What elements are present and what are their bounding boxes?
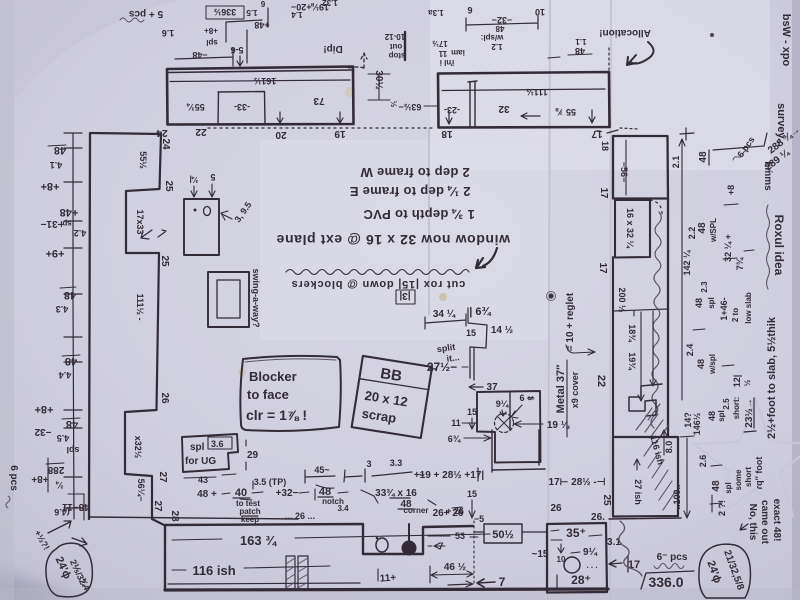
svg-text:4.1: 4.1 (50, 160, 63, 170)
svg-text:BB: BB (379, 365, 403, 385)
svg-text:+ 26: + 26 (446, 506, 464, 516)
svg-text:¾|: ¾| (190, 175, 199, 184)
svg-text:18: 18 (441, 128, 453, 139)
svg-text:~15: ~15 (532, 549, 549, 560)
svg-text:37: 37 (486, 382, 498, 393)
svg-text:17½: 17½ (432, 39, 448, 48)
svg-text:= 10 + reglet: = 10 + reglet (565, 292, 576, 351)
svg-text:spl: spl (717, 410, 726, 422)
svg-text:10-12: 10-12 (384, 32, 405, 41)
svg-text:short:: short: (732, 397, 741, 420)
svg-text:25: 25 (601, 494, 612, 506)
svg-text:163 ¾: 163 ¾ (240, 533, 277, 548)
svg-text:26: 26 (550, 503, 562, 514)
svg-text:161½: 161½ (253, 76, 276, 86)
svg-text:stop: stop (388, 51, 405, 60)
svg-text:48: 48 (65, 355, 77, 367)
svg-text:48: 48 (66, 418, 78, 430)
svg-text:55 ⅞: 55 ⅞ (556, 107, 577, 117)
svg-text:55½: 55½ (138, 151, 148, 169)
svg-text:7: 7 (499, 575, 506, 589)
svg-text:4.2: 4.2 (74, 228, 87, 238)
svg-text:50½: 50½ (492, 529, 513, 541)
svg-text:x32½: x32½ (133, 436, 143, 459)
svg-text:40: 40 (235, 487, 247, 499)
svg-text:48: 48 (694, 298, 704, 308)
svg-text:5: 5 (210, 172, 215, 182)
svg-text:19: 19 (334, 128, 346, 139)
svg-text:... 26 ...: ... 26 ... (285, 511, 315, 521)
svg-text:14 ½: 14 ½ (491, 325, 513, 336)
svg-text:26.: 26. (591, 512, 605, 523)
svg-text:2̶7½−: 2̶7½− (427, 360, 457, 374)
svg-text:+8+: +8+ (35, 403, 54, 415)
svg-text:to face: to face (247, 387, 289, 402)
svg-text:16 x 32 ¼: 16 x 32 ¼ (625, 208, 635, 250)
svg-text:15: 15 (466, 328, 476, 338)
svg-text:2.6: 2.6 (698, 455, 708, 468)
svg-text:+8+: +8+ (41, 180, 60, 192)
svg-text:25: 25 (163, 180, 174, 192)
svg-text:11: 11 (438, 49, 447, 58)
svg-text:18: 18 (600, 141, 610, 151)
svg-text:3.4: 3.4 (337, 504, 349, 513)
svg-text:3: 3 (366, 459, 371, 469)
svg-text:w/spl:: w/spl: (481, 33, 505, 42)
svg-text:48: 48 (495, 24, 504, 33)
svg-text:6: 6 (467, 5, 472, 15)
svg-text:19 ⅛: 19 ⅛ (547, 420, 570, 431)
svg-text:spl: spl (66, 445, 79, 455)
svg-text:48: 48 (707, 411, 717, 421)
svg-text:28⁺: 28⁺ (571, 573, 591, 587)
svg-text:17: 17 (591, 128, 603, 139)
svg-text:28: 28 (169, 510, 180, 522)
svg-text:1.2: 1.2 (491, 42, 503, 51)
svg-text:1+46-: 1+46- (719, 297, 729, 320)
svg-text:exact 48!: exact 48! (771, 499, 782, 542)
svg-text:5-6: 5-6 (230, 45, 243, 55)
svg-text:+48: +48 (254, 20, 269, 30)
svg-text:|3|: |3| (399, 290, 410, 301)
svg-text:56¼−: 56¼− (136, 479, 146, 502)
svg-text:½: ½ (743, 379, 752, 386)
svg-text:No, this: No, this (747, 504, 758, 541)
svg-text:8.0: 8.0 (664, 441, 674, 454)
svg-text:some: some (734, 469, 743, 490)
svg-text:336.0: 336.0 (648, 574, 683, 590)
svg-text:2 dep to frame W: 2 dep to frame W (360, 165, 470, 180)
svg-text:2.3: 2.3 (700, 281, 709, 293)
svg-text:17: 17 (598, 187, 609, 199)
svg-text:27: 27 (157, 471, 168, 483)
svg-text:10: 10 (535, 7, 545, 17)
svg-text:+8+: +8+ (204, 26, 218, 35)
svg-text:cut rox |15| down @ blockers: cut rox |15| down @ blockers (291, 278, 465, 290)
svg-text:6⁻ pcs: 6⁻ pcs (657, 552, 688, 563)
svg-text:35⁺: 35⁺ (566, 526, 586, 540)
svg-text:116 ish: 116 ish (192, 563, 235, 578)
svg-text:2½+foot to slab, 5½thik: 2½+foot to slab, 5½thik (766, 316, 778, 439)
svg-text:Allocation!: Allocation! (599, 27, 651, 38)
svg-text:1.3a: 1.3a (428, 8, 444, 17)
svg-text:63½−: 63½− (399, 102, 422, 112)
svg-text:ɾq″ foot: ɾq″ foot (754, 457, 764, 490)
svg-text:−32: −32 (34, 426, 51, 437)
svg-text:iŉl i: iŉl i (440, 58, 455, 67)
svg-text:17⊢ 28½ -⊣: 17⊢ 28½ -⊣ (549, 477, 606, 488)
svg-text:window now 32 x 16 @ ext plane: window now 32 x 16 @ ext plane (276, 232, 511, 248)
svg-text:1.32: 1.32 (322, 0, 338, 7)
svg-text:111½: 111½ (526, 87, 548, 97)
svg-text:1.1: 1.1 (575, 37, 587, 46)
svg-text:−48: −48 (192, 50, 207, 60)
svg-text:−5: −5 (474, 514, 484, 524)
svg-text:53: 53 (455, 531, 465, 541)
svg-text:43: 43 (198, 475, 208, 485)
svg-text:34 ¼: 34 ¼ (433, 309, 456, 320)
svg-text:25: 25 (159, 255, 170, 267)
svg-text:+9+: +9+ (46, 247, 65, 259)
svg-text:1.4: 1.4 (291, 10, 303, 19)
svg-text:11+: 11+ (379, 572, 396, 584)
svg-text:. . .: . . . (586, 561, 597, 570)
svg-text:29: 29 (247, 450, 259, 461)
svg-text:-33-: -33- (234, 102, 250, 112)
svg-text:48: 48 (696, 359, 706, 369)
svg-text:out: out (389, 42, 402, 51)
svg-text:2 to: 2 to (731, 308, 740, 322)
svg-text:23½→: 23½→ (744, 398, 755, 427)
svg-text:48: 48 (64, 289, 76, 301)
svg-text:low slab: low slab (744, 292, 753, 324)
svg-text:33¾ x 16: 33¾ x 16 (375, 488, 417, 499)
svg-text:111½ -: 111½ - (135, 293, 145, 320)
svg-text:came out: came out (759, 500, 770, 545)
svg-text:26: 26 (159, 392, 170, 404)
svg-text:4.4: 4.4 (59, 370, 72, 380)
svg-text:for UG: for UG (185, 456, 216, 467)
svg-text:5 + pcs: 5 + pcs (128, 8, 163, 19)
svg-text:18¾: 18¾ (627, 324, 637, 343)
svg-text:20: 20 (275, 129, 287, 140)
svg-text:55¾: 55¾ (186, 102, 205, 112)
svg-text:x9 cover: x9 cover (570, 371, 580, 408)
svg-text:+8+: +8+ (31, 473, 48, 484)
svg-text:½: ½ (389, 101, 398, 108)
svg-text:−56−: −56− (619, 162, 629, 183)
svg-text:9¼: 9¼ (496, 399, 510, 409)
svg-text:32 ¼ +: 32 ¼ + (723, 234, 733, 262)
svg-text:2 ?!: 2 ?! (717, 500, 727, 516)
svg-text:3.5 (TP): 3.5 (TP) (254, 477, 287, 487)
svg-text:spl: spl (724, 482, 733, 494)
svg-text:24: 24 (160, 138, 171, 150)
svg-text:336½: 336½ (213, 7, 236, 17)
svg-text:+8: +8 (726, 185, 736, 195)
svg-text:15: 15 (467, 489, 477, 499)
svg-text:4.5: 4.5 (57, 433, 70, 443)
svg-text:12|: 12| (732, 375, 742, 388)
svg-text:48 +: 48 + (197, 489, 217, 500)
svg-text:2.1: 2.1 (671, 156, 681, 169)
svg-text:48: 48 (697, 222, 708, 234)
svg-text:4.3: 4.3 (56, 304, 69, 314)
svg-text:+32−: +32− (276, 488, 299, 499)
svg-text:1 ¾ depth to PVC: 1 ¾ depth to PVC (363, 207, 475, 222)
svg-text:200 ½: 200 ½ (617, 287, 627, 313)
svg-text:11: 11 (451, 418, 461, 428)
svg-text:32: 32 (498, 103, 510, 114)
svg-text:2.2: 2.2 (687, 227, 697, 240)
svg-text:..109..: ..109.. (672, 484, 682, 509)
svg-text:swing-a-way?: swing-a-way? (251, 268, 261, 327)
svg-text:Blocker: Blocker (249, 369, 297, 384)
svg-text:iam: iam (451, 48, 465, 57)
svg-text:3.3: 3.3 (390, 458, 403, 468)
svg-text:spl: spl (707, 297, 716, 309)
svg-text:2 ¼ dep to frame E: 2 ¼ dep to frame E (349, 184, 470, 199)
svg-text:27: 27 (152, 500, 163, 512)
svg-text:2.5: 2.5 (722, 398, 731, 410)
svg-text:corner: corner (404, 506, 429, 515)
svg-text:short: short (744, 467, 753, 487)
svg-text:19¾: 19¾ (627, 352, 637, 371)
svg-text:1.5: 1.5 (246, 8, 258, 17)
svg-text:clr = 1⅞ !: clr = 1⅞ ! (246, 407, 307, 423)
svg-text:spl: spl (206, 38, 218, 47)
svg-text:1.6: 1.6 (162, 28, 175, 38)
svg-text:73: 73 (313, 95, 325, 106)
svg-text:Metal 37″: Metal 37″ (555, 364, 567, 413)
svg-text:2.4: 2.4 (685, 344, 695, 357)
svg-text:6¾: 6¾ (448, 434, 462, 444)
svg-text:22: 22 (595, 375, 607, 387)
svg-text:17: 17 (597, 262, 608, 274)
svg-text:27 ish: 27 ish (633, 479, 643, 505)
svg-text:bsW - xpo: bsW - xpo (780, 14, 792, 67)
svg-text:142 ¼: 142 ¼ (682, 249, 692, 276)
svg-text:−31−: −31− (40, 218, 63, 229)
svg-text:+48: +48 (60, 206, 79, 218)
svg-text:-23-: -23- (444, 105, 460, 115)
svg-text:146½: 146½ (692, 412, 702, 435)
svg-text:3.6: 3.6 (211, 439, 224, 449)
svg-text:6 ⇍: 6 ⇍ (519, 393, 535, 403)
svg-text:45~: 45~ (314, 465, 329, 475)
svg-text:48−11: 48−11 (62, 501, 90, 512)
svg-text:w/spl: w/spl (708, 354, 717, 375)
svg-text:Dip!: Dip! (323, 43, 342, 54)
svg-text:spl: spl (190, 442, 205, 453)
svg-text:Roxul idea: Roxul idea (772, 215, 786, 276)
svg-text:9¼: 9¼ (583, 547, 598, 558)
svg-text:46 ½: 46 ½ (444, 562, 466, 573)
svg-text:−32−: −32− (492, 15, 513, 25)
svg-text:| 6¾: | 6¾ (469, 306, 491, 318)
svg-text:15: 15 (467, 407, 477, 417)
svg-text:48: 48 (698, 151, 709, 163)
svg-text:+19 + 28½ +17|: +19 + 28½ +17| (414, 470, 485, 481)
svg-text:6: 6 (260, 0, 265, 8)
svg-text:22: 22 (195, 126, 207, 137)
svg-text:6 pcs: 6 pcs (8, 465, 19, 491)
svg-text:w/SPL: w/SPL (709, 218, 718, 243)
svg-text:48: 48 (711, 480, 722, 492)
svg-text:288: 288 (47, 464, 64, 475)
